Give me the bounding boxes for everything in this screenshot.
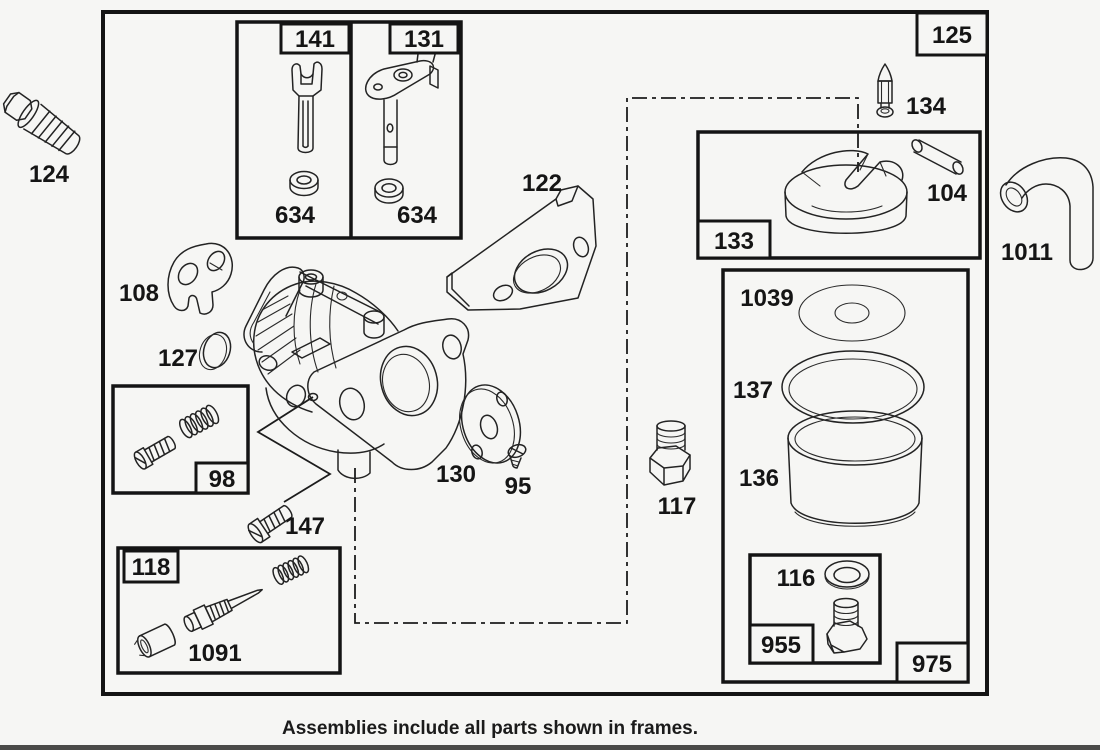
part-label-98: 98 [209,466,236,493]
part-634-washer-right [375,179,403,203]
assembly-frames [103,12,987,694]
part-label-634b: 634 [397,202,438,229]
part-label-136: 136 [739,465,779,492]
part-label-118: 118 [132,554,171,581]
part-label-124: 124 [29,161,70,188]
part-136-bowl [788,411,922,526]
exploded-parts-diagram: 124 141 131 634 634 125 134 104 133 122 … [0,0,1100,750]
leader-line-147 [258,397,330,502]
part-label-95: 95 [505,473,532,500]
parts-diagram-page: 124 141 131 634 634 125 134 104 133 122 … [0,0,1100,750]
part-104-pin [910,138,965,176]
part-127-disc [195,329,235,373]
part-118-spring [271,554,311,585]
part-label-122: 122 [522,170,562,197]
part-label-975: 975 [912,651,952,678]
part-label-127: 127 [158,345,198,372]
part-label-133: 133 [714,228,754,255]
part-95-screw [507,443,528,468]
part-118-cap [132,623,177,660]
diagram-caption: Assemblies include all parts shown in fr… [282,718,698,739]
part-1039-diaphragm [799,285,905,341]
part-label-1091: 1091 [188,640,241,667]
part-labels: 124 141 131 634 634 125 134 104 133 122 … [29,22,1053,678]
part-label-130: 130 [436,461,476,488]
part-122-spacer [447,186,596,310]
part-label-125: 125 [932,22,972,49]
part-116-washer [825,561,869,589]
part-label-131: 131 [404,26,444,53]
carburetor-body [244,267,469,478]
screenshot-bottom-edge [0,745,1100,750]
part-label-137: 137 [733,377,773,404]
part-label-141: 141 [295,26,335,53]
part-label-117: 117 [658,493,697,520]
part-137-oring [782,351,924,423]
part-124-bolt [0,86,85,161]
part-98-screw [132,433,178,471]
part-98-spring [177,403,221,439]
part-label-1039: 1039 [740,285,793,312]
part-label-108: 108 [119,280,159,307]
part-1091-needle [181,580,266,635]
part-label-147: 147 [285,513,325,540]
part-label-104: 104 [927,180,968,207]
part-label-634a: 634 [275,202,316,229]
part-133-float [785,151,907,234]
part-634-washer-left [290,172,318,196]
part-141-shaft [292,62,322,152]
part-label-116: 116 [777,565,816,592]
part-108-plate [168,243,232,314]
part-117-nut [650,421,690,485]
part-label-134: 134 [906,93,947,120]
part-134-needle [877,64,893,117]
part-label-1011: 1011 [1001,239,1053,266]
part-955-screw [827,599,867,654]
part-131-lever-shaft [366,41,438,165]
part-label-955: 955 [761,632,801,659]
